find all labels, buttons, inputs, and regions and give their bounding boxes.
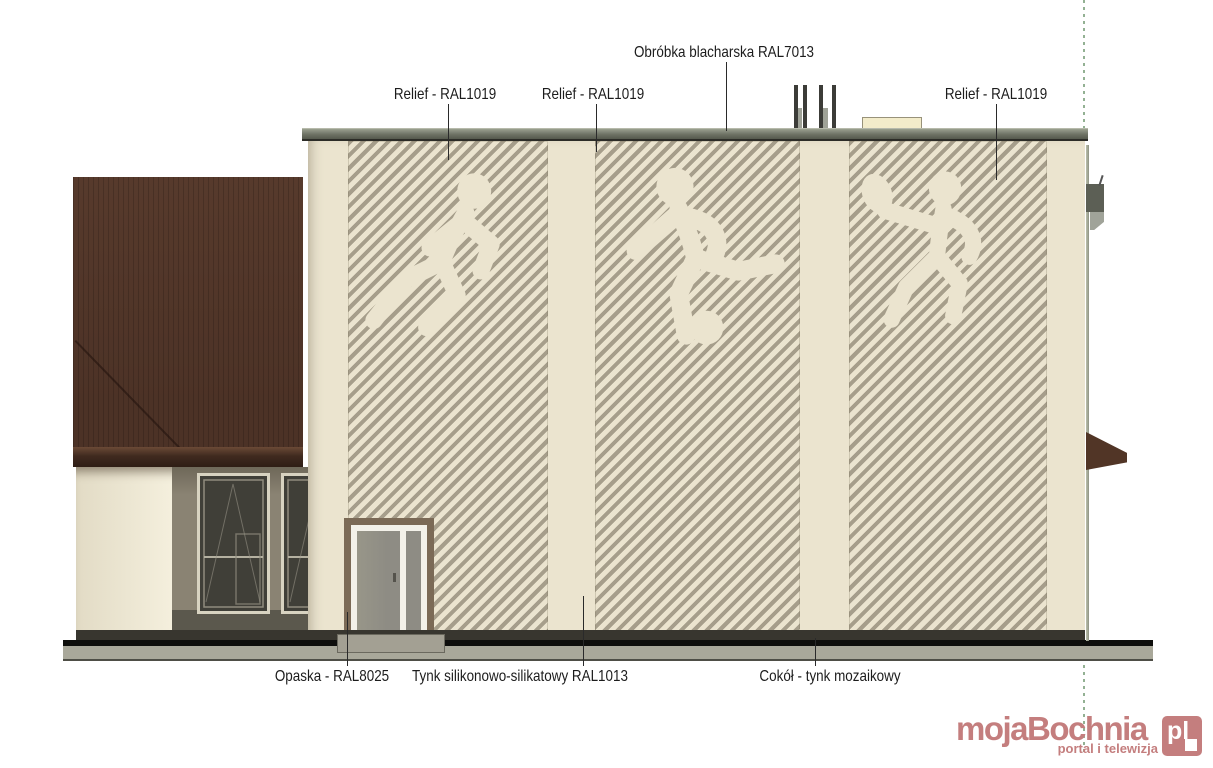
door-leaf bbox=[357, 531, 400, 637]
roof-railing-icon bbox=[794, 85, 840, 133]
facade-corner-edge bbox=[1086, 145, 1089, 641]
gutter-bracket bbox=[1086, 184, 1104, 212]
rear-roof-corner bbox=[1086, 432, 1127, 470]
window-icon bbox=[196, 472, 271, 615]
tennis-player-relief-icon bbox=[856, 168, 1018, 338]
elevation-drawing: Relief - RAL1019 Relief - RAL1019 Obróbk… bbox=[0, 0, 1213, 768]
leader-line-relief-3 bbox=[996, 104, 997, 180]
watermark-pl-badge: pl bbox=[1162, 716, 1202, 756]
leader-line-opaska bbox=[347, 612, 348, 666]
left-building-roof bbox=[73, 177, 303, 447]
railing-bar bbox=[803, 85, 807, 133]
label-tynk: Tynk silikonowo-silikatowy RAL1013 bbox=[412, 668, 628, 685]
entrance-step bbox=[337, 634, 445, 653]
gutter-bracket-foot bbox=[1090, 212, 1104, 230]
football-player-relief-icon bbox=[608, 166, 794, 354]
watermark-badge-notch bbox=[1185, 739, 1197, 751]
railing-bar bbox=[819, 85, 823, 133]
parapet-flashing bbox=[302, 128, 1088, 141]
leader-line-relief-2 bbox=[596, 104, 597, 152]
leader-line-relief-1 bbox=[448, 104, 449, 160]
roof-fascia bbox=[73, 447, 303, 467]
door-sidelight bbox=[406, 531, 421, 637]
label-cokol: Cokół - tynk mozaikowy bbox=[759, 668, 900, 685]
label-opaska: Opaska - RAL8025 bbox=[275, 668, 389, 685]
leader-line-tynk bbox=[583, 596, 584, 666]
railing-bar bbox=[832, 85, 836, 133]
door-handle bbox=[393, 573, 396, 582]
watermark-tagline: portal i telewizja bbox=[1058, 741, 1158, 756]
railing-bar bbox=[794, 85, 798, 133]
label-relief-1: Relief - RAL1019 bbox=[394, 86, 496, 103]
leader-line-cokol bbox=[815, 638, 816, 666]
label-flashing: Obróbka blacharska RAL7013 bbox=[634, 44, 814, 61]
label-relief-2: Relief - RAL1019 bbox=[542, 86, 644, 103]
terrain-strip bbox=[63, 646, 1153, 661]
leader-line-flashing bbox=[726, 62, 727, 131]
runner-relief-icon bbox=[362, 168, 532, 345]
label-relief-3: Relief - RAL1019 bbox=[945, 86, 1047, 103]
